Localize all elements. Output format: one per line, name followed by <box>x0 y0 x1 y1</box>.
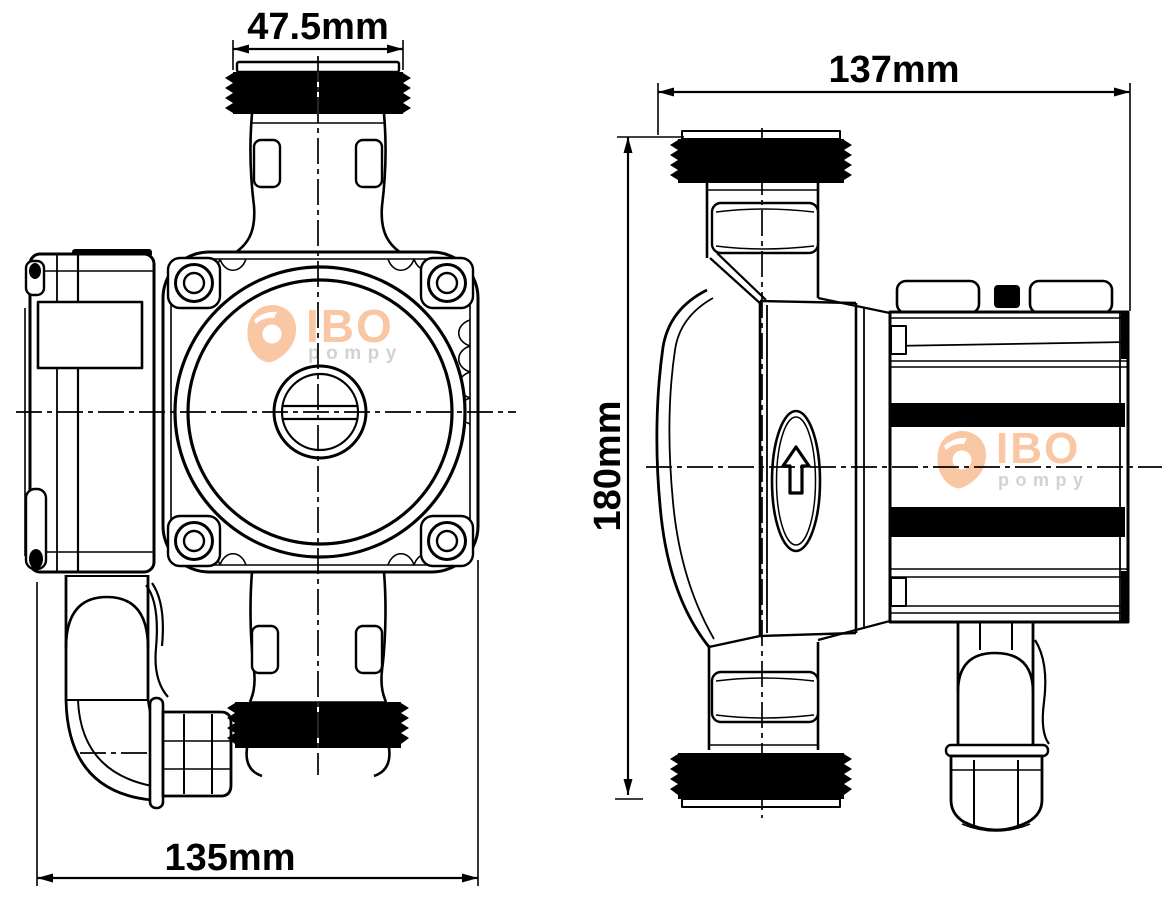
arrow-right-icon <box>462 874 478 883</box>
wrench-flat <box>356 626 382 673</box>
arrow-up-icon <box>624 137 633 153</box>
side-height-dimension-label: 180mm <box>587 401 629 532</box>
drawing-canvas: IBO pompy <box>0 0 1176 900</box>
front-brand-logo: IBO pompy <box>247 300 402 364</box>
front-bottom-dimension-label: 135mm <box>165 837 296 879</box>
brand-subtitle: pompy <box>998 470 1090 490</box>
wrench-flat <box>356 140 382 187</box>
wrench-flat <box>252 626 278 673</box>
terminal-cover-bump <box>897 281 979 313</box>
front-view: IBO pompy <box>16 6 516 886</box>
front-top-dimension-label: 47.5mm <box>247 6 389 48</box>
brand-text: IBO <box>996 424 1080 473</box>
front-conduit-elbow <box>66 575 231 808</box>
arrow-down-icon <box>624 779 633 795</box>
terminal-box-label <box>38 302 142 368</box>
terminal-screw <box>994 285 1020 308</box>
wrench-flat <box>254 140 280 187</box>
brand-subtitle: pompy <box>308 343 403 364</box>
arrow-left-icon <box>658 88 674 97</box>
front-terminal-box <box>25 249 154 572</box>
conduit-hex-nut <box>163 712 231 796</box>
side-height-dimension: 180mm <box>587 137 684 799</box>
side-top-thread <box>678 139 844 183</box>
motor-band <box>890 507 1125 537</box>
flow-direction-indicator <box>772 411 820 551</box>
terminal-cover-bump <box>1030 281 1112 313</box>
pump-technical-drawing: IBO pompy <box>0 0 1176 900</box>
arrow-right-icon <box>387 45 403 54</box>
side-cable-gland <box>946 622 1049 831</box>
side-view: IBO pompy <box>587 49 1162 831</box>
side-top-dimension-label: 137mm <box>829 49 960 91</box>
arrow-right-icon <box>1114 88 1130 97</box>
side-bottom-thread <box>678 753 844 799</box>
arrow-left-icon <box>37 874 53 883</box>
gland-hex-nut <box>951 756 1042 830</box>
side-inlet-pipe <box>670 131 852 305</box>
side-outlet-pipe <box>670 642 852 807</box>
side-brand-logo: IBO pompy <box>937 424 1089 490</box>
